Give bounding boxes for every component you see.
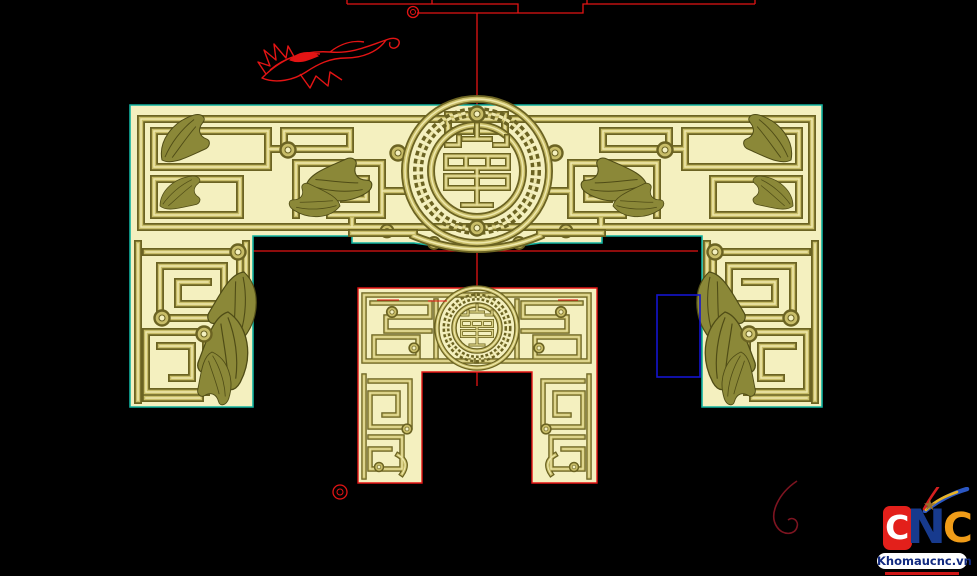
node-circle-inner: [411, 10, 416, 15]
cad-viewport: ★ C N C Khomaucnc.vn: [0, 0, 977, 576]
selection-rectangle: [657, 295, 700, 377]
node-circle: [408, 7, 419, 18]
design-drawing: [0, 0, 977, 576]
medallion-bottom-bead: [470, 221, 485, 236]
floral-ornament-wireframe: [258, 38, 399, 88]
watermark-logo: ★ C N C Khomaucnc.vn: [877, 504, 973, 575]
marker-circle: [333, 485, 347, 499]
star-icon: ★: [923, 496, 936, 514]
swirl-curve: [774, 481, 798, 533]
logo-site-banner: Khomaucnc.vn: [877, 553, 967, 569]
medallion-top-bead: [470, 107, 485, 122]
logo-site-text: Khomaucnc.vn: [877, 554, 972, 568]
logo-underline: [885, 572, 959, 575]
